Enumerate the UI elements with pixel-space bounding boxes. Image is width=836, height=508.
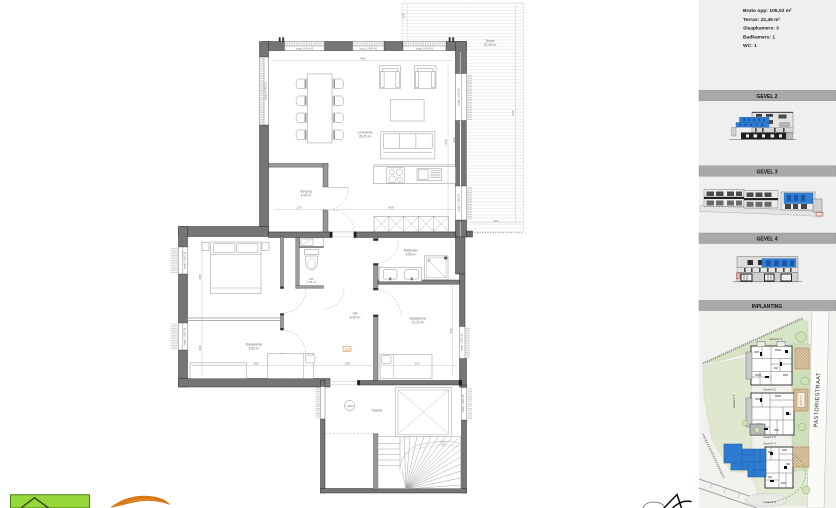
svg-text:258: 258 — [198, 274, 202, 279]
svg-text:178: 178 — [402, 13, 406, 18]
svg-text:Gevel 5 Z.: Gevel 5 Z. — [764, 435, 777, 439]
svg-text:35,05 m²: 35,05 m² — [359, 135, 372, 139]
svg-text:kozijn 1.00h2.40: kozijn 1.00h2.40 — [462, 394, 465, 412]
svg-text:Gevel 3 'Y': Gevel 3 'Y' — [732, 394, 736, 408]
svg-text:22,45 m²: 22,45 m² — [484, 43, 497, 47]
svg-text:kozijn 1.60h2.35: kozijn 1.60h2.35 — [458, 88, 461, 106]
svg-text:8,95 m²: 8,95 m² — [249, 347, 260, 351]
svg-text:Slaapkamers: 3: Slaapkamers: 3 — [743, 26, 779, 32]
svg-text:Gevel 4 'Y': Gevel 4 'Y' — [763, 442, 777, 446]
svg-text:kozijn 1.80h2.40: kozijn 1.80h2.40 — [359, 47, 377, 50]
svg-text:Gevel 1 'C': Gevel 1 'C' — [800, 395, 802, 406]
svg-text:GEVEL 2: GEVEL 2 — [756, 94, 777, 100]
svg-text:kozijn 1.00h2.35: kozijn 1.00h2.35 — [460, 333, 463, 351]
svg-text:4,55 m²: 4,55 m² — [406, 253, 417, 257]
svg-text:Gevel 2 Z.: Gevel 2 Z. — [764, 500, 777, 504]
svg-text:WC: 1: WC: 1 — [743, 43, 757, 49]
svg-text:846: 846 — [360, 56, 365, 60]
svg-text:8,25 m²: 8,25 m² — [350, 316, 361, 320]
svg-text:4,05 m²: 4,05 m² — [301, 194, 312, 198]
svg-text:148: 148 — [344, 361, 349, 365]
svg-text:179: 179 — [296, 205, 301, 209]
svg-text:INPLANTING: INPLANTING — [752, 304, 783, 310]
svg-text:GEVEL 3: GEVEL 3 — [756, 169, 777, 175]
svg-text:kozijn 1.10h2.35: kozijn 1.10h2.35 — [458, 194, 461, 212]
svg-text:kozijn 2.40h2.35: kozijn 2.40h2.35 — [265, 82, 268, 100]
svg-text:12,15 m²: 12,15 m² — [412, 321, 425, 325]
svg-text:846: 846 — [511, 110, 515, 115]
svg-text:485: 485 — [253, 361, 258, 365]
svg-text:Gevel 4 'Y': Gevel 4 'Y' — [769, 337, 783, 341]
svg-text:kozijn 1.50h2.35: kozijn 1.50h2.35 — [184, 251, 187, 269]
svg-text:Terras: 22,45 m²: Terras: 22,45 m² — [743, 17, 781, 23]
svg-text:358: 358 — [449, 328, 453, 333]
svg-text:kozijn 1.80h2.40: kozijn 1.80h2.40 — [296, 47, 314, 50]
svg-text:kozijn 1.50h2.35: kozijn 1.50h2.35 — [184, 327, 187, 345]
svg-text:456: 456 — [388, 205, 393, 209]
svg-text:548: 548 — [444, 139, 448, 144]
svg-text:210: 210 — [493, 219, 498, 223]
svg-text:+260: +260 — [346, 404, 353, 408]
svg-text:GEVEL 4: GEVEL 4 — [756, 237, 777, 243]
svg-text:Traphal: Traphal — [371, 409, 382, 413]
svg-text:208: 208 — [198, 345, 202, 350]
svg-text:302: 302 — [414, 361, 419, 365]
svg-text:203: 203 — [344, 347, 349, 351]
svg-text:kozijn 1.80h2.40: kozijn 1.80h2.40 — [416, 47, 434, 50]
svg-text:1,35 m²: 1,35 m² — [307, 280, 316, 284]
svg-text:Badkamers: 1: Badkamers: 1 — [743, 34, 775, 40]
svg-text:Gevel 5 Z.: Gevel 5 Z. — [764, 388, 777, 392]
svg-text:846: 846 — [452, 137, 456, 142]
svg-text:Bruto opp: 105,02 m²: Bruto opp: 105,02 m² — [743, 8, 792, 14]
